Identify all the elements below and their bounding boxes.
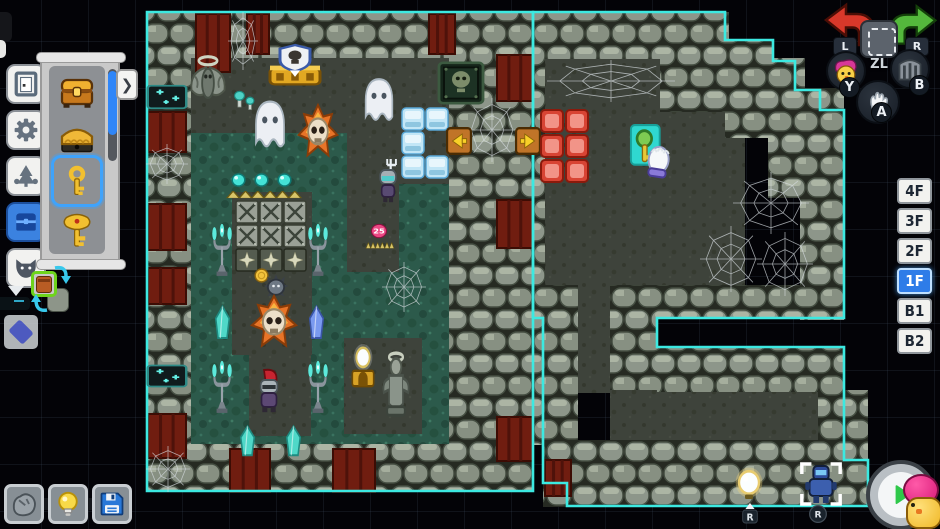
icetile[interactable]: [402, 108, 424, 130]
hint-bulb-button[interactable]: [48, 484, 88, 524]
icetile[interactable]: [402, 132, 424, 154]
palette-expand-button[interactable]: ❯: [116, 69, 138, 100]
coin[interactable]: [255, 269, 268, 282]
save-button[interactable]: [92, 484, 132, 524]
spiderweb[interactable]: [547, 60, 675, 102]
red-banner[interactable]: [497, 200, 533, 248]
swap-up-arrow-icon[interactable]: [28, 292, 50, 314]
spiderweb[interactable]: [228, 12, 258, 70]
golden-chest-icon: [59, 74, 95, 110]
palette-item-golden-bed[interactable]: [56, 117, 98, 159]
floor-button-1f-active[interactable]: 1F: [897, 268, 932, 294]
orbtorch[interactable]: [255, 174, 268, 186]
path-floor[interactable]: [577, 285, 611, 393]
red-banner[interactable]: [333, 449, 375, 492]
red-banner[interactable]: [148, 268, 186, 304]
spiderweb[interactable]: [733, 172, 809, 234]
icetile[interactable]: [402, 156, 424, 178]
rock-tool-button[interactable]: [4, 484, 44, 524]
spiderweb[interactable]: [382, 262, 426, 312]
boss-key-icon: [59, 212, 95, 250]
redtile[interactable]: [566, 135, 588, 157]
palette-item-golden-chest[interactable]: [56, 71, 98, 113]
palette-bottom-cap: [36, 259, 126, 270]
spikeplate[interactable]: [284, 225, 306, 247]
bulb-icon: [53, 489, 83, 519]
red-banner[interactable]: [497, 55, 533, 101]
dungeon-map[interactable]: 25RR: [0, 0, 940, 529]
redtile[interactable]: [566, 110, 588, 132]
redtile[interactable]: [541, 160, 563, 182]
svg-text:R: R: [746, 512, 754, 523]
floor-button-2f[interactable]: 2F: [897, 238, 932, 264]
red-banner[interactable]: [148, 204, 186, 250]
gear-icon: [13, 117, 39, 143]
floor-button-3f[interactable]: 3F: [897, 208, 932, 234]
orbtorch[interactable]: [232, 174, 245, 186]
golden-bed-icon: [58, 120, 96, 156]
svg-text:R: R: [814, 509, 821, 520]
rcircle[interactable]: R: [810, 506, 827, 523]
icetile[interactable]: [426, 156, 448, 178]
wall[interactable]: [657, 285, 844, 318]
redtile[interactable]: [566, 160, 588, 182]
y-label: Y: [839, 77, 860, 98]
nature-icon: [13, 163, 39, 189]
redtile[interactable]: [541, 110, 563, 132]
palette-item-small-key[interactable]: [51, 155, 103, 207]
spiderweb[interactable]: [146, 446, 190, 492]
wall[interactable]: [610, 285, 658, 390]
fairyjar[interactable]: [148, 86, 187, 109]
starplate[interactable]: [260, 249, 282, 271]
palette-item-boss-key[interactable]: [56, 210, 98, 252]
spikeplate[interactable]: [236, 201, 258, 223]
ghost[interactable]: [256, 102, 284, 147]
diamond-icon: [8, 319, 33, 344]
red-banner[interactable]: [247, 14, 269, 54]
spikeplate[interactable]: [260, 225, 282, 247]
floor-button-b1[interactable]: B1: [897, 298, 932, 324]
spiderweb[interactable]: [700, 226, 762, 292]
zl-selection-button[interactable]: [860, 20, 898, 58]
starplate[interactable]: [284, 249, 306, 271]
doormarker[interactable]: [516, 128, 540, 154]
pot-icon: [36, 276, 52, 293]
red-banner[interactable]: [497, 417, 533, 461]
item-palette-panel: ❯: [40, 55, 120, 267]
collapse-triangle-icon[interactable]: [8, 286, 24, 296]
orbtorch[interactable]: [278, 174, 291, 186]
floor-button-4f[interactable]: 4F: [897, 178, 932, 204]
svg-text:25: 25: [373, 227, 384, 235]
chick-character: [906, 497, 940, 529]
partial-toolbar-button-2[interactable]: [0, 40, 6, 58]
door-icon: [13, 71, 39, 97]
fairyjar[interactable]: [148, 366, 187, 387]
dungeon-editor-screen: 25RR ❯: [0, 0, 940, 529]
save-disk-icon: [98, 490, 126, 518]
ghost[interactable]: [366, 79, 393, 120]
chest-icon: [13, 209, 39, 235]
marker-tool-button[interactable]: [4, 315, 38, 349]
spiderweb[interactable]: [757, 232, 813, 296]
path-floor[interactable]: [249, 350, 311, 436]
swap-down-arrow-icon[interactable]: [52, 264, 74, 286]
red-banner[interactable]: [429, 14, 455, 54]
b-label: B: [909, 75, 930, 96]
partial-toolbar-button[interactable]: [0, 12, 12, 42]
spiderweb[interactable]: [146, 144, 188, 184]
a-label: A: [871, 102, 892, 123]
spikeplate[interactable]: [236, 225, 258, 247]
path-floor[interactable]: [610, 388, 822, 442]
spiderweb[interactable]: [466, 98, 518, 162]
small-key-icon: [60, 163, 94, 199]
rock-icon: [9, 489, 39, 519]
panel-handle[interactable]: [0, 297, 30, 310]
spikeplate[interactable]: [284, 201, 306, 223]
spikeplate[interactable]: [260, 201, 282, 223]
icetile[interactable]: [426, 108, 448, 130]
dashed-square-icon: [868, 28, 896, 56]
starplate[interactable]: [236, 249, 258, 271]
redtile[interactable]: [541, 135, 563, 157]
floor-button-b2[interactable]: B2: [897, 328, 932, 354]
doormarker[interactable]: [447, 128, 471, 154]
goblinplaque[interactable]: [439, 63, 483, 103]
wall[interactable]: [449, 57, 545, 445]
lamppedestal[interactable]: [352, 344, 373, 386]
badge[interactable]: 25: [372, 224, 387, 237]
palette-top-cap: [36, 52, 126, 63]
wall[interactable]: [657, 347, 844, 392]
